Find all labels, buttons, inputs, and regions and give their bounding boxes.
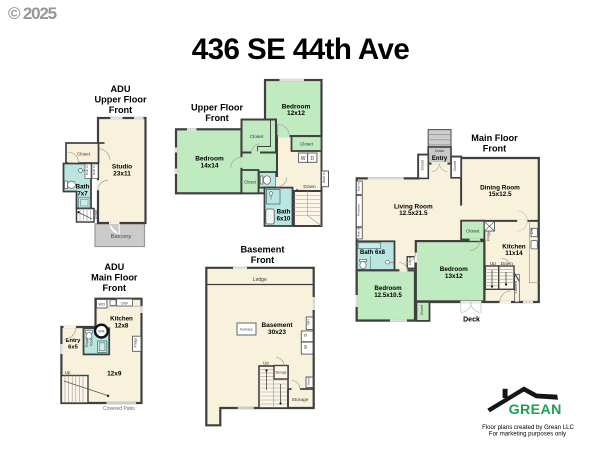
svg-text:Up: Up	[65, 370, 71, 375]
svg-text:GREAN: GREAN	[509, 402, 562, 418]
svg-text:Built In: Built In	[92, 165, 96, 175]
svg-text:Closet: Closet	[453, 161, 457, 171]
svg-text:Main Floor: Main Floor	[91, 273, 138, 283]
svg-text:Main Floor: Main Floor	[471, 133, 518, 143]
svg-text:Down: Down	[94, 210, 98, 220]
svg-text:6x5: 6x5	[68, 345, 78, 351]
svg-text:WH: WH	[307, 319, 311, 325]
svg-text:Balcony: Balcony	[111, 234, 132, 240]
svg-text:Bath 6x8: Bath 6x8	[360, 250, 386, 256]
svg-text:Bedroom: Bedroom	[374, 285, 402, 292]
svg-text:Closet: Closet	[244, 180, 257, 185]
svg-text:Down: Down	[303, 184, 316, 190]
svg-text:Basement: Basement	[241, 245, 285, 255]
svg-text:11x14: 11x14	[505, 250, 523, 257]
svg-text:DW: DW	[121, 301, 128, 305]
svg-text:W: W	[301, 156, 306, 162]
svg-text:W: W	[303, 345, 308, 349]
svg-text:For marketing purposes only: For marketing purposes only	[489, 431, 567, 438]
svg-text:23x11: 23x11	[113, 171, 131, 178]
svg-text:Fridge: Fridge	[134, 338, 138, 348]
svg-text:Fireplace: Fireplace	[356, 204, 360, 217]
svg-text:Closet: Closet	[420, 160, 424, 170]
svg-text:Closet: Closet	[250, 134, 264, 140]
svg-text:Front: Front	[103, 283, 126, 293]
svg-text:Front: Front	[205, 113, 228, 123]
svg-text:ADU: ADU	[104, 262, 124, 272]
svg-text:Front: Front	[483, 144, 506, 154]
svg-text:Front: Front	[251, 255, 274, 265]
svg-text:12.5x10.5: 12.5x10.5	[374, 292, 402, 299]
svg-text:Ledge: Ledge	[253, 277, 267, 283]
svg-text:Bath: Bath	[277, 209, 291, 216]
svg-text:Storage: Storage	[275, 371, 286, 375]
svg-text:Upper Floor: Upper Floor	[191, 103, 243, 113]
svg-text:436 SE 44th Ave: 436 SE 44th Ave	[192, 33, 410, 66]
svg-text:Shelves: Shelves	[307, 376, 311, 386]
svg-text:Closet: Closet	[77, 152, 91, 157]
svg-text:Kitchen: Kitchen	[110, 316, 133, 323]
svg-text:15x12.5: 15x12.5	[488, 191, 512, 198]
svg-text:13x12: 13x12	[445, 273, 463, 280]
svg-text:ADU: ADU	[111, 84, 131, 94]
svg-text:Furnace: Furnace	[240, 328, 253, 332]
svg-text:Studio: Studio	[112, 164, 132, 171]
svg-text:12x9: 12x9	[107, 371, 122, 378]
svg-text:Entry: Entry	[432, 156, 448, 162]
svg-text:14x14: 14x14	[200, 162, 218, 169]
svg-text:Built In: Built In	[356, 227, 360, 237]
svg-text:6x10: 6x10	[277, 216, 291, 223]
svg-text:Closet: Closet	[300, 142, 314, 147]
svg-text:Front: Front	[109, 105, 132, 115]
svg-text:Built In: Built In	[322, 172, 326, 182]
svg-text:Closet: Closet	[466, 228, 480, 234]
svg-text:12x8: 12x8	[115, 323, 129, 330]
svg-text:Down: Down	[435, 149, 444, 153]
svg-text:7x7: 7x7	[77, 190, 88, 197]
svg-text:D: D	[310, 156, 314, 162]
svg-text:Closet: Closet	[420, 305, 424, 315]
svg-text:12x12: 12x12	[287, 110, 305, 117]
svg-text:D: D	[303, 334, 308, 337]
svg-text:Deck: Deck	[463, 317, 480, 324]
svg-text:WH: WH	[98, 329, 104, 333]
svg-text:Bedroom: Bedroom	[440, 266, 468, 273]
svg-text:Fridge: Fridge	[487, 231, 491, 241]
svg-text:Covered Patio: Covered Patio	[103, 406, 135, 412]
svg-text:WD: WD	[99, 303, 106, 307]
svg-text:Upper Floor: Upper Floor	[94, 95, 146, 105]
svg-text:12.5x21.5: 12.5x21.5	[399, 210, 428, 217]
svg-text:Built In: Built In	[85, 165, 89, 175]
svg-text:30x23: 30x23	[268, 329, 286, 336]
svg-text:DW: DW	[530, 228, 534, 234]
svg-text:© 2025: © 2025	[8, 4, 57, 23]
svg-text:Storage: Storage	[292, 397, 309, 403]
svg-text:Up: Up	[263, 361, 269, 366]
svg-text:Built In: Built In	[356, 182, 360, 192]
